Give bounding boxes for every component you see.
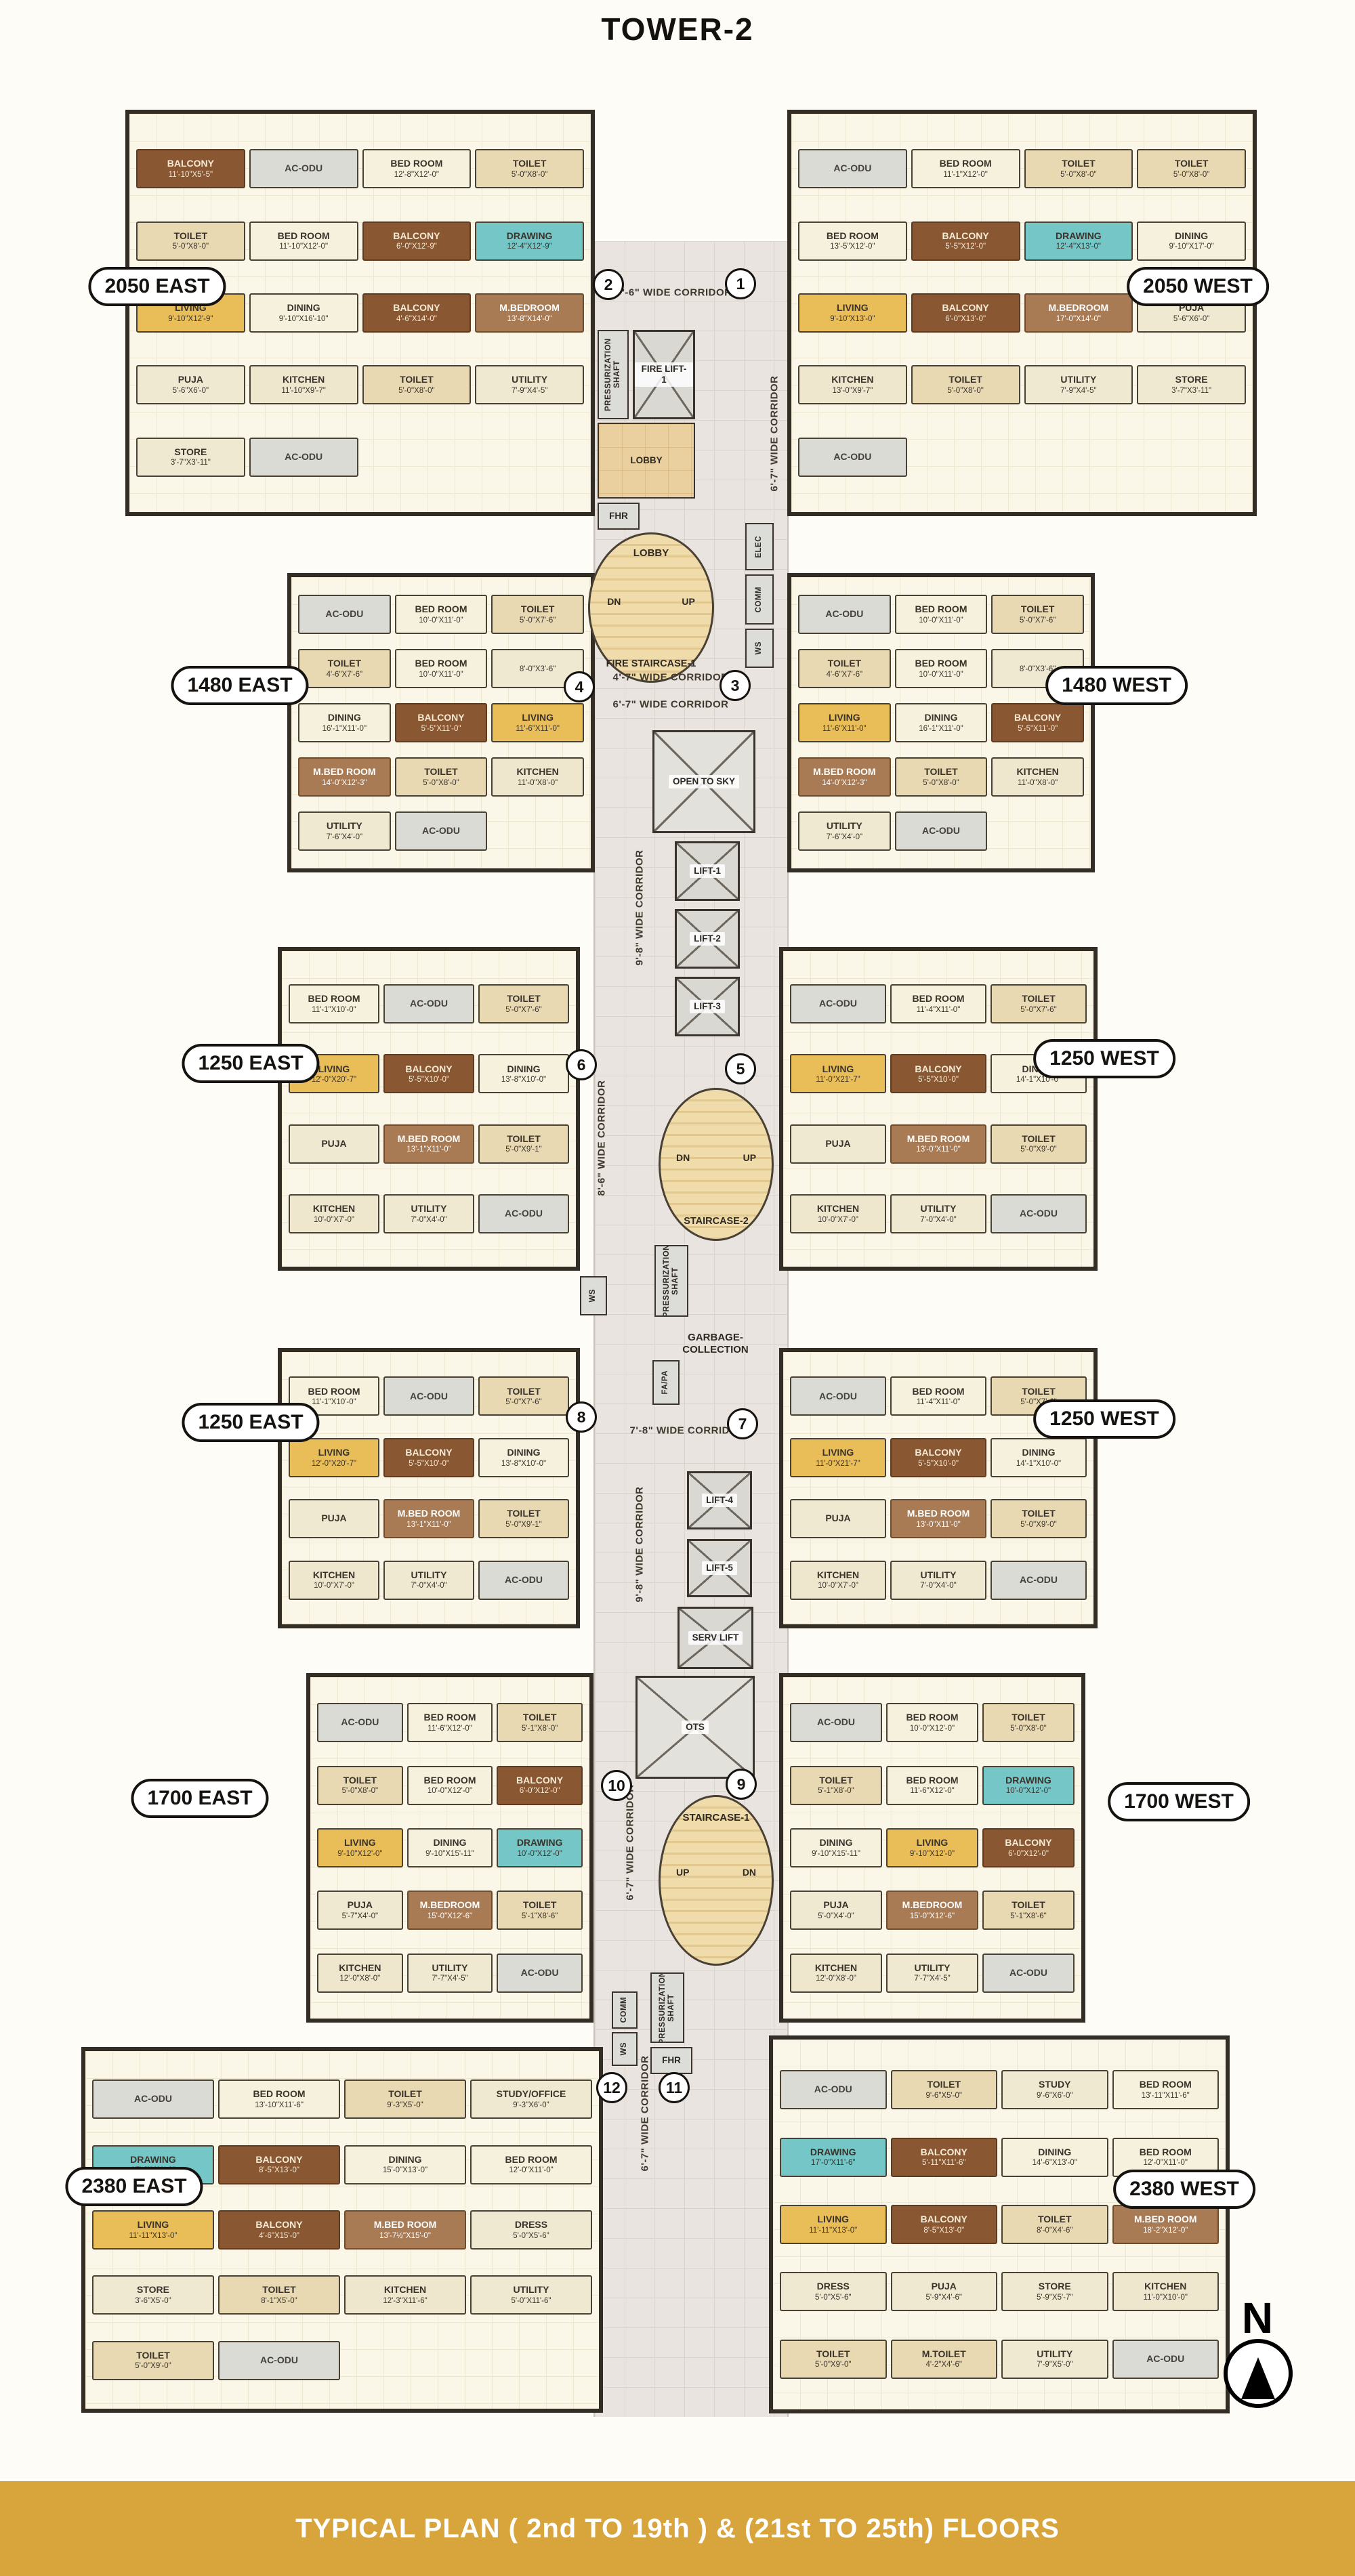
room-dimension: 5'-5"X11'-0"	[1018, 725, 1058, 733]
room-name: TOILET	[927, 2079, 961, 2090]
room-name: TOILET	[507, 1134, 541, 1145]
room-dimension: 10'-0"X12'-0"	[910, 1725, 955, 1733]
room-toilet: TOILET5'-0"X9'-1"	[478, 1124, 569, 1164]
room-ac-odu: AC-ODU	[249, 438, 358, 477]
room-name: PUJA	[321, 1139, 346, 1149]
room-name: LIVING	[138, 2220, 169, 2231]
staircase-dn-up-label: DN	[743, 1867, 756, 1878]
room-name: AC-ODU	[1146, 2354, 1184, 2365]
shaft-pressurization-shaft: PRESSURIZATION SHAFT	[650, 1972, 684, 2043]
room-dimension: 5'-0"X9'-0"	[135, 2362, 171, 2370]
room-dimension: 10'-0"X12'-0"	[428, 1787, 472, 1795]
position-marker-10: 10	[601, 1770, 632, 1801]
room-name: DINING	[1022, 1448, 1056, 1458]
room-dimension: 11'-10"X12'-0"	[279, 242, 328, 251]
room-dimension: 11'-11"X13'-0"	[809, 2226, 857, 2235]
unit-badge-1250-west-b: 1250 WEST	[1033, 1399, 1175, 1439]
room-dimension: 6'-0"X12'-0"	[1008, 1850, 1049, 1858]
position-marker-5: 5	[725, 1053, 756, 1084]
room-puja: PUJA5'-0"X4'-0"	[790, 1891, 882, 1930]
room-name: STORE	[1175, 375, 1208, 385]
room-name: UTILITY	[432, 1963, 468, 1974]
room-utility: UTILITY7'-0"X4'-0"	[383, 1561, 474, 1600]
open-area-open-to-sky: OPEN TO SKY	[652, 730, 755, 833]
room-dimension: 11'-1"X10'-0"	[312, 1398, 356, 1406]
corridor-width-label: 4'-7" WIDE CORRIDOR	[612, 672, 728, 683]
room-dress: DRESS5'-0"X5'-6"	[780, 2272, 887, 2311]
corridor-width-label: 6'-7" WIDE CORRIDOR	[612, 699, 728, 711]
room-toilet: TOILET5'-0"X7'-6"	[478, 1376, 569, 1416]
room-name: TOILET	[262, 2285, 296, 2296]
room-name: M.BED ROOM	[907, 1508, 970, 1519]
staircase-top-label: LOBBY	[633, 547, 669, 559]
room-dimension: 5'-9"X4'-6"	[926, 2294, 962, 2302]
room-store: STORE3'-7"X3'-11"	[136, 438, 245, 477]
room-dimension: 3'-7"X3'-11"	[171, 459, 211, 467]
room-name: BED ROOM	[915, 604, 967, 615]
room-name: AC-ODU	[422, 826, 460, 837]
room-dimension: 14'-0"X12'-3"	[322, 779, 367, 787]
room-toilet: TOILET5'-0"X9'-1"	[478, 1499, 569, 1538]
unit-1250-east-a: BED ROOM11'-1"X10'-0"AC-ODUTOILET5'-0"X7…	[278, 947, 580, 1271]
room-name: BALCONY	[942, 231, 989, 242]
unit-badge-2050-east: 2050 EAST	[88, 267, 226, 306]
room-toilet: TOILET8'-0"X4'-6"	[1001, 2205, 1108, 2244]
room-dimension: 9'-6"X5'-0"	[926, 2092, 962, 2100]
room-ac-odu: AC-ODU	[478, 1561, 569, 1600]
room-dimension: 18'-2"X12'-0"	[1143, 2226, 1188, 2235]
room-toilet: TOILET5'-0"X7'-6"	[991, 984, 1087, 1023]
core-label: FHR	[609, 511, 628, 522]
room-dimension: 11'-6"X11'-0"	[822, 725, 867, 733]
shaft-pressurization-shaft: PRESSURIZATION SHAFT	[598, 330, 629, 419]
room-store: STORE3'-6"X5'-0"	[92, 2275, 214, 2315]
room-dimension: 12'-4"X13'-0"	[1056, 242, 1101, 251]
room-toilet: TOILET9'-6"X5'-0"	[891, 2070, 998, 2109]
room-ac-odu: AC-ODU	[317, 1703, 403, 1742]
corridor-width-label: 6'-7" WIDE CORRIDOR	[625, 1784, 636, 1900]
room-drawing: DRAWING10'-0"X12'-0"	[982, 1766, 1075, 1805]
staircase-name-label: FIRE STAIRCASE-1	[606, 658, 696, 669]
room-dimension: 15'-0"X13'-0"	[383, 2166, 428, 2174]
room-name: AC-ODU	[505, 1208, 543, 1219]
unit-2380-east: AC-ODUBED ROOM13'-10"X11'-6"TOILET9'-3"X…	[81, 2047, 603, 2413]
room-dimension: 8'-1"X5'-0"	[261, 2297, 297, 2305]
shaft-pressurization-shaft: PRESSURIZATION SHAFT	[654, 1245, 688, 1317]
room-dimension: 11'-6"X12'-0"	[428, 1725, 472, 1733]
room-kitchen: KITCHEN11'-0"X8'-0"	[491, 757, 584, 797]
room-utility: UTILITY7'-0"X4'-0"	[890, 1194, 986, 1233]
room-living: LIVING11'-11"X13'-0"	[780, 2205, 887, 2244]
room-name: M.TOILET	[922, 2349, 966, 2360]
room-name: PUJA	[321, 1513, 346, 1524]
unit-badge-2380-east: 2380 EAST	[65, 2167, 203, 2206]
room-dimension: 9'-10"X12'-9"	[168, 315, 213, 323]
room-name: PUJA	[823, 1900, 848, 1911]
room-name: STUDY	[1039, 2079, 1070, 2090]
room-dimension: 5'-5"X10'-0"	[409, 1460, 449, 1468]
room-dimension: 4'-6"X15'-0"	[259, 2232, 299, 2240]
room-name: DRAWING	[517, 1838, 563, 1849]
room-dimension: 11'-6"X12'-0"	[910, 1787, 954, 1795]
room-dimension: 7'-7"X4'-5"	[914, 1975, 950, 1983]
room-dimension: 5'-0"X8'-0"	[1173, 171, 1209, 179]
room-name: LIVING	[817, 2214, 849, 2225]
room-dimension: 7'-0"X4'-0"	[411, 1582, 446, 1590]
room-name: DRAWING	[130, 2155, 176, 2166]
position-marker-6: 6	[566, 1049, 597, 1080]
room-dimension: 12'-3"X11'-6"	[383, 2297, 427, 2305]
room-name: AC-ODU	[505, 1575, 543, 1586]
room-dimension: 4'-6"X7'-6"	[327, 671, 362, 679]
position-marker-7: 7	[727, 1408, 758, 1439]
room-kitchen: KITCHEN10'-0"X7'-0"	[289, 1194, 379, 1233]
north-indicator: N	[1224, 2298, 1291, 2408]
shaft-ws: WS	[612, 2032, 638, 2066]
room-name: AC-ODU	[341, 1717, 379, 1728]
room-ac-odu: AC-ODU	[991, 1561, 1087, 1600]
room-dimension: 13'-8"X10'-0"	[501, 1076, 546, 1084]
staircase-staircase-2: DNUPSTAIRCASE-2	[659, 1088, 774, 1241]
room-name: BED ROOM	[415, 658, 467, 669]
room-balcony: BALCONY5'-11"X11'-6"	[891, 2138, 998, 2177]
room-name: DINING	[287, 303, 320, 314]
room-dimension: 5'-5"X11'-0"	[421, 725, 461, 733]
room-dimension: 10'-0"X7'-0"	[818, 1582, 858, 1590]
room-dimension: 7'-7"X4'-5"	[432, 1975, 467, 1983]
room-name: AC-ODU	[521, 1968, 559, 1979]
room-name: STORE	[1039, 2281, 1071, 2292]
room-balcony: BALCONY5'-5"X11'-0"	[991, 703, 1084, 742]
room-name: TOILET	[948, 375, 982, 385]
core-label: LOBBY	[630, 455, 662, 466]
shaft-fhr: FHR	[598, 503, 640, 530]
room-dimension: 8'-0"X3'-6"	[520, 665, 556, 673]
north-arrow-triangle	[1241, 2357, 1275, 2399]
room-name: AC-ODU	[134, 2094, 172, 2105]
page-title: TOWER-2	[0, 11, 1355, 47]
core-label: COMM	[755, 587, 764, 612]
room-puja: PUJA	[289, 1124, 379, 1164]
core-label: LIFT-4	[702, 1494, 737, 1507]
room-dimension: 5'-0"X7'-6"	[505, 1398, 541, 1406]
room-name: BED ROOM	[940, 159, 992, 169]
room-name: TOILET	[1175, 159, 1209, 169]
room-name: M.BEDROOM	[420, 1900, 480, 1911]
room-living: LIVING11'-0"X21'-7"	[790, 1054, 886, 1093]
room-dimension: 14'-0"X12'-3"	[822, 779, 867, 787]
room-name: LIVING	[837, 303, 869, 314]
room-dimension: 13'-10"X11'-6"	[255, 2101, 304, 2109]
room-name: LIVING	[917, 1838, 948, 1849]
room-ac-odu: AC-ODU	[478, 1194, 569, 1233]
room-name: TOILET	[819, 1775, 853, 1786]
room-store: STORE3'-7"X3'-11"	[1137, 365, 1246, 404]
unit-1700-east: AC-ODUBED ROOM11'-6"X12'-0"TOILET5'-1"X8…	[306, 1673, 593, 2023]
room-dimension: 16'-1"X11'-0"	[322, 725, 367, 733]
room-name: DINING	[507, 1064, 541, 1075]
room-name: AC-ODU	[1009, 1968, 1047, 1979]
room-m-bedroom: M.BEDROOM15'-0"X12'-6"	[886, 1891, 978, 1930]
room-dimension: 7'-9"X4'-5"	[512, 387, 547, 395]
core-label: LIFT-2	[690, 932, 725, 946]
unit-badge-2380-west: 2380 WEST	[1113, 2170, 1255, 2209]
position-marker-8: 8	[566, 1401, 597, 1433]
room-name: PUJA	[825, 1139, 850, 1149]
room-dimension: 5'-0"X8'-0"	[1010, 1725, 1046, 1733]
room-dimension: 14'-6"X13'-0"	[1033, 2159, 1077, 2167]
room-name: M.BEDROOM	[499, 303, 560, 314]
room-dimension: 10'-0"X11'-0"	[919, 616, 963, 625]
room-dimension: 17'-0"X11'-6"	[811, 2159, 855, 2167]
room-balcony: BALCONY11'-10"X5'-5"	[136, 149, 245, 188]
unit-badge-1700-west: 1700 WEST	[1108, 1782, 1250, 1821]
room-ac-odu: AC-ODU	[780, 2070, 887, 2109]
room-dimension: 6'-0"X12'-0"	[520, 1787, 560, 1795]
room-name: BED ROOM	[915, 658, 967, 669]
room-name: TOILET	[1062, 159, 1096, 169]
room-dimension: 16'-1"X11'-0"	[919, 725, 963, 733]
room-dimension: 11'-0"X21'-7"	[816, 1076, 860, 1084]
room-dimension: 5'-1"X8'-6"	[522, 1912, 558, 1920]
room-dimension: 12'-8"X12'-0"	[394, 171, 439, 179]
room-name: KITCHEN	[1017, 767, 1059, 778]
room-dimension: 5'-0"X8'-0"	[512, 171, 547, 179]
room-dimension: 6'-0"X12'-9"	[396, 242, 437, 251]
room-ac-odu: AC-ODU	[790, 984, 886, 1023]
room-dimension: 5'-6"X6'-0"	[173, 387, 209, 395]
room-balcony: BALCONY8'-5"X13'-0"	[891, 2205, 998, 2244]
room-toilet: TOILET5'-0"X8'-0"	[895, 757, 988, 797]
room-toilet: TOILET8'-1"X5'-0"	[218, 2275, 340, 2315]
room-utility: UTILITY7'-9"X4'-5"	[1024, 365, 1133, 404]
room-utility: UTILITY5'-0"X11'-6"	[470, 2275, 592, 2315]
room-m-bedroom: M.BEDROOM17'-0"X14'-0"	[1024, 293, 1133, 333]
room-toilet: TOILET5'-0"X8'-0"	[1137, 149, 1246, 188]
room-dimension: 9'-10"X13'-0"	[830, 315, 875, 323]
room-dining: DINING16'-1"X11'-0"	[895, 703, 988, 742]
room-dimension: 9'-3"X6'-0"	[513, 2101, 549, 2109]
room-dimension: 9'-10"X12'-0"	[337, 1850, 382, 1858]
room-name: KITCHEN	[313, 1204, 355, 1215]
room-m-bed-room: M.BED ROOM14'-0"X12'-3"	[798, 757, 891, 797]
room-bed-room: BED ROOM13'-5"X12'-0"	[798, 221, 907, 261]
room-dimension: 13'-1"X11'-0"	[406, 1521, 451, 1529]
room-dimension: 11'-10"X5'-5"	[169, 171, 213, 179]
room-toilet: TOILET5'-0"X8'-0"	[362, 365, 472, 404]
room-name: TOILET	[1012, 1900, 1045, 1911]
shaft-fa-pa: FA/PA	[652, 1360, 680, 1405]
room-name: DINING	[389, 2155, 422, 2166]
core-label: FA/PA	[661, 1370, 670, 1395]
room-dimension: 5'-0"X9'-1"	[505, 1521, 541, 1529]
staircase-dn-up-label: UP	[682, 596, 694, 607]
room-dining: DINING13'-8"X10'-0"	[478, 1438, 569, 1477]
room-name: BALCONY	[393, 231, 440, 242]
room-name: PUJA	[178, 375, 203, 385]
room-dimension: 9'-10"X17'-0"	[1169, 242, 1213, 251]
room-toilet: TOILET5'-0"X9'-0"	[991, 1499, 1087, 1538]
unit-1250-east-b: BED ROOM11'-1"X10'-0"AC-ODUTOILET5'-0"X7…	[278, 1348, 580, 1628]
room-name: DRESS	[817, 2281, 850, 2292]
room-dimension: 10'-0"X11'-0"	[419, 616, 463, 625]
shaft-fhr: FHR	[650, 2047, 692, 2074]
north-arrow-icon	[1224, 2339, 1293, 2408]
room-kitchen: KITCHEN11'-0"X8'-0"	[991, 757, 1084, 797]
room-dimension: 5'-0"X8'-0"	[1060, 171, 1096, 179]
room-dimension: 11'-10"X9'-7"	[281, 387, 325, 395]
room-dimension: 5'-0"X5'-6"	[815, 2294, 851, 2302]
room-m-bed-room: M.BED ROOM13'-1"X11'-0"	[383, 1124, 474, 1164]
position-marker-4: 4	[564, 671, 595, 702]
room-bed-room: BED ROOM13'-10"X11'-6"	[218, 2079, 340, 2119]
room-name: PUJA	[932, 2281, 957, 2292]
room-name: AC-ODU	[285, 452, 322, 463]
room-utility: UTILITY7'-7"X4'-5"	[407, 1954, 493, 1993]
room-name: AC-ODU	[817, 1717, 855, 1728]
room-dimension: 5'-11"X11'-6"	[922, 2159, 966, 2167]
room-toilet: TOILET5'-1"X8'-6"	[982, 1891, 1075, 1930]
room-dimension: 7'-9"X5'-0"	[1037, 2361, 1072, 2369]
room-dimension: 9'-10"X15'-11"	[425, 1850, 474, 1858]
room-ac-odu: AC-ODU	[249, 149, 358, 188]
room-name: BED ROOM	[415, 604, 467, 615]
room-ac-odu: AC-ODU	[1112, 2340, 1219, 2379]
core-label: WS	[755, 641, 764, 655]
unit-1250-west-a: AC-ODUBED ROOM11'-4"X11'-0"TOILET5'-0"X7…	[779, 947, 1098, 1271]
floor-plan-canvas: TOWER-2 N TYPICAL PLAN ( 2nd TO 19th ) &…	[0, 0, 1355, 2576]
room-dimension: 8'-5"X13'-0"	[259, 2166, 299, 2174]
room-name: TOILET	[343, 1775, 377, 1786]
room-dimension: 12'-0"X8'-0"	[816, 1975, 856, 1983]
position-marker-2: 2	[593, 269, 624, 300]
room-dimension: 5'-0"X11'-6"	[511, 2297, 551, 2305]
room-utility: UTILITY7'-0"X4'-0"	[890, 1561, 986, 1600]
room-name: BED ROOM	[906, 1775, 959, 1786]
core-label: PRESSURIZATION SHAFT	[604, 331, 622, 418]
unit-1250-west-b: AC-ODUBED ROOM11'-4"X11'-0"TOILET5'-0"X7…	[779, 1348, 1098, 1628]
core-label: FHR	[662, 2055, 681, 2066]
room-dimension: 5'-5"X10'-0"	[918, 1076, 959, 1084]
room-ac-odu: AC-ODU	[982, 1954, 1075, 1993]
room-toilet: TOILET5'-0"X9'-0"	[780, 2340, 887, 2379]
core-label: COMM	[620, 1997, 629, 2023]
staircase-dn-up-label: DN	[607, 596, 621, 607]
staircase-dn-up-label: UP	[676, 1867, 689, 1878]
room-dimension: 10'-0"X7'-0"	[314, 1582, 354, 1590]
staircase-dn-up-label: UP	[743, 1152, 756, 1163]
room-dimension: 9'-10"X12'-0"	[910, 1850, 955, 1858]
room-balcony: BALCONY5'-5"X10'-0"	[890, 1054, 986, 1093]
room-living: LIVING11'-11"X13'-0"	[92, 2210, 214, 2250]
room-name: UTILITY	[921, 1204, 957, 1215]
room-dimension: 5'-7"X4'-0"	[342, 1912, 378, 1920]
room-toilet: TOILET5'-0"X8'-0"	[136, 221, 245, 261]
room-name: BALCONY	[405, 1448, 452, 1458]
lift-lift-3: LIFT-3	[675, 977, 740, 1036]
room-name: BALCONY	[921, 2214, 967, 2225]
room-dimension: 9'-10"X16'-10"	[279, 315, 329, 323]
room-name: LIVING	[522, 713, 554, 723]
lift-fire-lift-1: FIRE LIFT-1	[633, 330, 695, 419]
room-toilet: TOILET5'-0"X8'-0"	[1024, 149, 1133, 188]
room-kitchen: KITCHEN12'-0"X8'-0"	[790, 1954, 882, 1993]
room-dimension: 11'-6"X11'-0"	[516, 725, 560, 733]
room-name: M.BED ROOM	[1134, 2214, 1197, 2225]
room-puja: PUJA	[790, 1499, 886, 1538]
open-area-ots: OTS	[635, 1676, 755, 1779]
room-dimension: 10'-0"X11'-0"	[919, 671, 963, 679]
room-kitchen: KITCHEN10'-0"X7'-0"	[790, 1561, 886, 1600]
room-dimension: 7'-6"X4'-0"	[827, 833, 862, 841]
room-dimension: 13'-8"X14'-0"	[507, 315, 551, 323]
room-m-bedroom: M.BEDROOM13'-8"X14'-0"	[475, 293, 584, 333]
room-dimension: 4'-2"X4'-6"	[926, 2361, 962, 2369]
room-name: AC-ODU	[814, 2084, 852, 2095]
room-name: AC-ODU	[819, 998, 857, 1009]
room-utility: UTILITY7'-7"X4'-5"	[886, 1954, 978, 1993]
room-dimension: 5'-1"X8'-6"	[1010, 1912, 1046, 1920]
room-name: TOILET	[136, 2350, 170, 2361]
shaft-lobby: LOBBY	[598, 423, 695, 499]
core-label: LIFT-1	[690, 864, 725, 878]
room-name: BALCONY	[516, 1775, 563, 1786]
corridor-width-label: 9'-8" WIDE CORRIDOR	[634, 1486, 646, 1602]
room-toilet: TOILET5'-0"X8'-0"	[395, 757, 488, 797]
room-name: BED ROOM	[253, 2089, 306, 2100]
room-name: TOILET	[523, 1900, 557, 1911]
room-toilet: TOILET5'-0"X7'-6"	[491, 595, 584, 634]
room-name: DRAWING	[810, 2147, 856, 2158]
unit-badge-1250-east-b: 1250 EAST	[182, 1403, 319, 1442]
room-name: PUJA	[348, 1900, 373, 1911]
room-dimension: 10'-0"X12'-0"	[518, 1850, 562, 1858]
core-label: OTS	[682, 1720, 709, 1734]
room-dimension: 13'-0"X11'-0"	[916, 1521, 960, 1529]
room-dimension: 5'-0"X8'-0"	[342, 1787, 378, 1795]
room-drawing: DRAWING10'-0"X12'-0"	[497, 1828, 583, 1867]
room-name: BALCONY	[417, 713, 464, 723]
room-balcony: BALCONY6'-0"X12'-0"	[982, 1828, 1075, 1867]
room-m-bedroom: M.BEDROOM15'-0"X12'-6"	[407, 1891, 493, 1930]
room-name: BED ROOM	[1140, 2147, 1192, 2158]
room-dimension: 11'-0"X8'-0"	[1018, 779, 1058, 787]
room-name: UTILITY	[1060, 375, 1096, 385]
room-name: KITCHEN	[283, 375, 325, 385]
core-label: ELEC	[755, 536, 764, 558]
room-bed-room: BED ROOM10'-0"X11'-0"	[395, 649, 488, 688]
room-name: UTILITY	[512, 375, 547, 385]
room-name: STORE	[174, 447, 207, 458]
room-study: STUDY9'-6"X6'-0"	[1001, 2070, 1108, 2109]
room-study-office: STUDY/OFFICE9'-3"X6'-0"	[470, 2079, 592, 2119]
unit-2380-west: AC-ODUTOILET9'-6"X5'-0"STUDY9'-6"X6'-0"B…	[769, 2035, 1230, 2413]
room-name: BED ROOM	[278, 231, 330, 242]
position-marker-11: 11	[659, 2072, 690, 2103]
room-dining: DINING14'-6"X13'-0"	[1001, 2138, 1108, 2177]
core-label: PRESSURIZATION SHAFT	[663, 1245, 680, 1317]
room-name: DRAWING	[1005, 1775, 1051, 1786]
room-dimension: 11'-1"X10'-0"	[312, 1006, 356, 1014]
room-ac-odu: AC-ODU	[790, 1703, 882, 1742]
room-dimension: 11'-0"X8'-0"	[518, 779, 558, 787]
unit-badge-1480-east: 1480 EAST	[171, 666, 308, 705]
room-balcony: BALCONY5'-5"X10'-0"	[383, 1054, 474, 1093]
core-label: FIRE LIFT-1	[635, 362, 693, 386]
room-name: TOILET	[1022, 994, 1056, 1005]
room-dimension: 5'-0"X8'-0"	[947, 387, 983, 395]
room-name: UTILITY	[827, 821, 862, 832]
